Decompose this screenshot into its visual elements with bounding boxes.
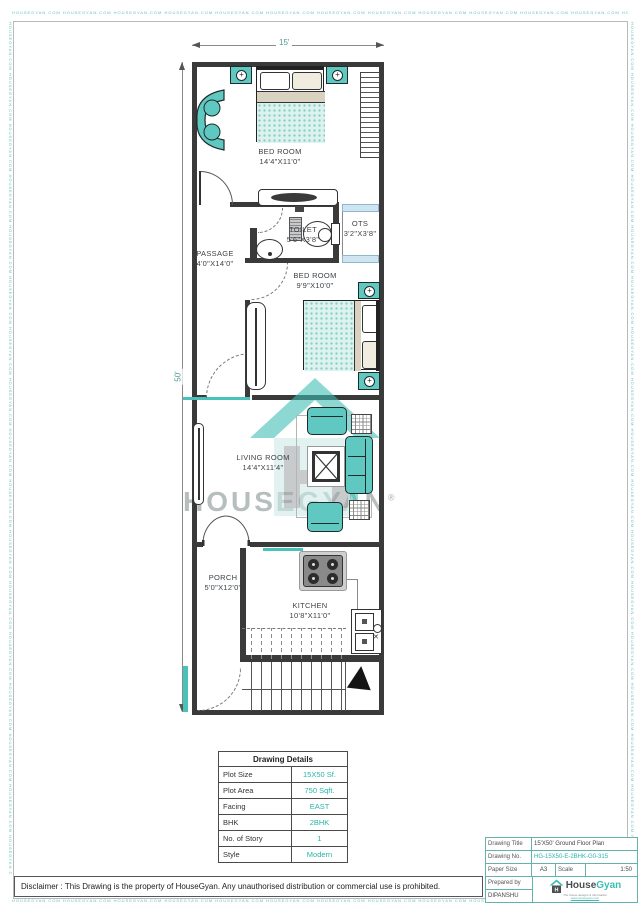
watermark-border-left: HOUSEGYAN.COM HOUSEGYAN.COM HOUSEGYAN.CO… [6, 22, 13, 874]
side-table-symbol [349, 500, 370, 520]
bed1-pillow-right [292, 72, 322, 90]
burner-icon [308, 559, 319, 570]
wall-living-bottom-b [250, 542, 379, 547]
room-name: LIVING ROOM [236, 453, 289, 463]
kitchen-window [263, 548, 303, 551]
wall-outer-left [192, 62, 197, 715]
sink-basin [355, 613, 374, 631]
room-name: KITCHEN [290, 601, 331, 611]
window-symbol [193, 423, 204, 505]
plant-icon: + [236, 70, 247, 81]
detail-value: 750 Sqft. [292, 783, 347, 798]
stairs-direction-arrow-icon [347, 665, 373, 690]
registered-mark: ® [388, 493, 398, 503]
room-label-passage: PASSAGE 4'0"X14'0" [196, 249, 233, 269]
room-size: 5'0"X12'0" [204, 583, 241, 593]
title-block-row: Drawing No. HG-15X50-E-2BHK-G0-315 [486, 851, 637, 864]
burner-icon [308, 573, 319, 584]
armchair-seat-line [311, 523, 339, 524]
ots-window-bottom [342, 255, 379, 263]
porch-side-marker [183, 666, 188, 712]
kitchen-sink-symbol: ✕ [351, 609, 382, 654]
stairs-landing-line [242, 689, 346, 690]
room-name: TOILET [287, 225, 320, 235]
logo-link: www.housegyan.com [571, 897, 599, 900]
table-row: Plot Area 750 Sqft. [219, 783, 347, 799]
details-table-title: Drawing Details [219, 752, 347, 767]
tb-label: Paper Size [486, 864, 532, 876]
vanity-counter-symbol [258, 189, 338, 206]
room-label-bedroom2: BED ROOM 9'9"X10'0" [293, 271, 336, 291]
armchair-top-symbol [307, 407, 347, 435]
main-double-door-symbol [202, 514, 250, 546]
table-row: Style Modern [219, 847, 347, 862]
wardrobe-shelf-symbol [360, 72, 380, 158]
sofa-three-seat-symbol [345, 436, 373, 494]
watermark-border-right: HOUSEGYAN.COM HOUSEGYAN.COM HOUSEGYAN.CO… [628, 22, 635, 874]
title-block-row: Prepared by DIPANSHU H HouseGyan The hou… [486, 877, 637, 902]
armchair-bottom-symbol [307, 502, 343, 532]
center-table-symbol [312, 451, 340, 482]
wc-tank [331, 223, 340, 245]
width-dimension-label: 15' [276, 38, 292, 47]
stairs-upper-dashed [242, 628, 346, 659]
stove-symbol [303, 555, 343, 587]
detail-label: BHK [219, 815, 292, 830]
detail-value: EAST [292, 799, 347, 814]
room-size: 4'0"X14'0" [196, 259, 233, 269]
washbasin-symbol [256, 239, 283, 260]
room-name: PORCH [204, 573, 241, 583]
tb-scale: 1:50 [586, 864, 637, 876]
plant-icon: + [332, 70, 343, 81]
disclaimer-bar: Disclaimer : This Drawing is the propert… [14, 876, 483, 897]
room-label-toilet: TOILET 5'6"X3'8" [287, 225, 320, 245]
detail-label: Facing [219, 799, 292, 814]
bed1-mattress [257, 103, 325, 143]
sofa-divider [348, 475, 365, 476]
bed1-blanket [257, 91, 325, 103]
room-size: 14'4"X11'0" [258, 157, 301, 167]
table-row: Facing EAST [219, 799, 347, 815]
housegyan-logo: H HouseGyan The house designs & informat… [533, 877, 637, 902]
tb-label: Prepared by [486, 877, 532, 890]
counter-line [357, 579, 358, 611]
bed2-mattress [304, 301, 354, 371]
burner-icon [327, 573, 338, 584]
nightstand-symbol: + [358, 372, 380, 390]
sofa-backrest-line [365, 439, 366, 493]
wardrobe2-door-line [255, 308, 257, 386]
room-size: 10'8"X11'0" [290, 611, 331, 621]
tb-label: Drawing No. [486, 851, 532, 863]
sofa-divider [348, 456, 365, 457]
dimension-line-height [182, 62, 183, 712]
table-row: No. of Story 1 [219, 831, 347, 847]
dim-arrow-up-icon [179, 62, 185, 70]
dim-arrow-left-icon [192, 42, 200, 48]
stairs-lower [242, 662, 346, 711]
room-name: BED ROOM [293, 271, 336, 281]
room-size: 5'6"X3'8" [287, 235, 320, 245]
bed1-symbol [256, 66, 324, 142]
svg-text:H: H [554, 888, 558, 894]
room-size: 14'4"X11'4" [236, 463, 289, 473]
detail-value: 15X50 Sf. [292, 767, 347, 782]
faucet-icon [373, 624, 382, 633]
bedroom1-door-leaf [199, 171, 201, 205]
plant-icon: + [364, 286, 375, 297]
room-name: PASSAGE [196, 249, 233, 259]
nightstand-symbol: + [326, 66, 348, 84]
bed2-symbol [303, 300, 380, 370]
bed2-blanket [354, 301, 361, 371]
burner-icon [327, 559, 338, 570]
tb-paper-size: A3 [532, 864, 556, 876]
bed1-pillow-left [260, 72, 290, 90]
room-label-bedroom1: BED ROOM 14'4"X11'0" [258, 147, 301, 167]
detail-label: Plot Size [219, 767, 292, 782]
room-size: 9'9"X10'0" [293, 281, 336, 291]
plant-icon: + [364, 376, 375, 387]
detail-label: No. of Story [219, 831, 292, 846]
nightstand-symbol: + [230, 66, 252, 84]
bed1-headboard [257, 67, 323, 70]
window-pane-line [198, 428, 200, 500]
room-label-porch: PORCH 5'0"X12'0" [204, 573, 241, 593]
tb-label: Scale [556, 864, 586, 876]
basin-drain [268, 252, 272, 256]
room-size: 3'2"X3'8" [344, 229, 377, 239]
sofa-curved-symbol [194, 88, 228, 152]
table-row: BHK 2BHK [219, 815, 347, 831]
stairs-edge-line [345, 662, 346, 711]
title-block: Drawing Title 15'X50' Ground Floor Plan … [485, 837, 638, 903]
tb-prepared-by: DIPANSHU [486, 890, 532, 902]
height-dimension-label: 50' [174, 368, 183, 384]
armchair-seat-line [311, 416, 343, 417]
detail-value: 1 [292, 831, 347, 846]
detail-label: Plot Area [219, 783, 292, 798]
drawing-details-table: Drawing Details Plot Size 15X50 Sf. Plot… [218, 751, 348, 863]
room-label-living: LIVING ROOM 14'4"X11'4" [236, 453, 289, 473]
housegyan-logo-icon: H [549, 879, 564, 893]
watermark-border-top: HOUSEGYAN.COM HOUSEGYAN.COM HOUSEGYAN.CO… [12, 10, 628, 18]
detail-value: Modern [292, 847, 347, 862]
tap-icon [295, 206, 304, 212]
detail-label: Style [219, 847, 292, 862]
tb-drawing-title: 15'X50' Ground Floor Plan [532, 838, 637, 850]
dim-arrow-right-icon [376, 42, 384, 48]
floor-plan-sheet: HOUSEGYAN.COM HOUSEGYAN.COM HOUSEGYAN.CO… [0, 0, 640, 905]
wc-seat [318, 228, 332, 242]
tb-drawing-no: HG-15X50-E-2BHK-G0-315 [532, 851, 637, 863]
room-label-ots: OTS 3'2"X3'8" [344, 219, 377, 239]
title-block-row: Paper Size A3 Scale 1:50 [486, 864, 637, 877]
vanity-basin [271, 193, 317, 202]
detail-value: 2BHK [292, 815, 347, 830]
room-label-kitchen: KITCHEN 10'8"X11'0" [290, 601, 331, 621]
ots-window-top [342, 204, 379, 212]
tb-label: Drawing Title [486, 838, 532, 850]
wardrobe2-symbol [246, 302, 266, 390]
table-row: Plot Size 15X50 Sf. [219, 767, 347, 783]
sink-basin [355, 633, 374, 651]
room-name: OTS [344, 219, 377, 229]
logo-wordmark: HouseGyan [566, 881, 622, 891]
room-name: BED ROOM [258, 147, 301, 157]
side-table-symbol [351, 414, 372, 434]
bed2-headboard [376, 301, 379, 371]
disclaimer-text: Disclaimer : This Drawing is the propert… [21, 882, 440, 891]
nightstand-symbol: + [358, 282, 380, 299]
faucet-cross-icon: ✕ [373, 634, 379, 641]
title-block-row: Drawing Title 15'X50' Ground Floor Plan [486, 838, 637, 851]
